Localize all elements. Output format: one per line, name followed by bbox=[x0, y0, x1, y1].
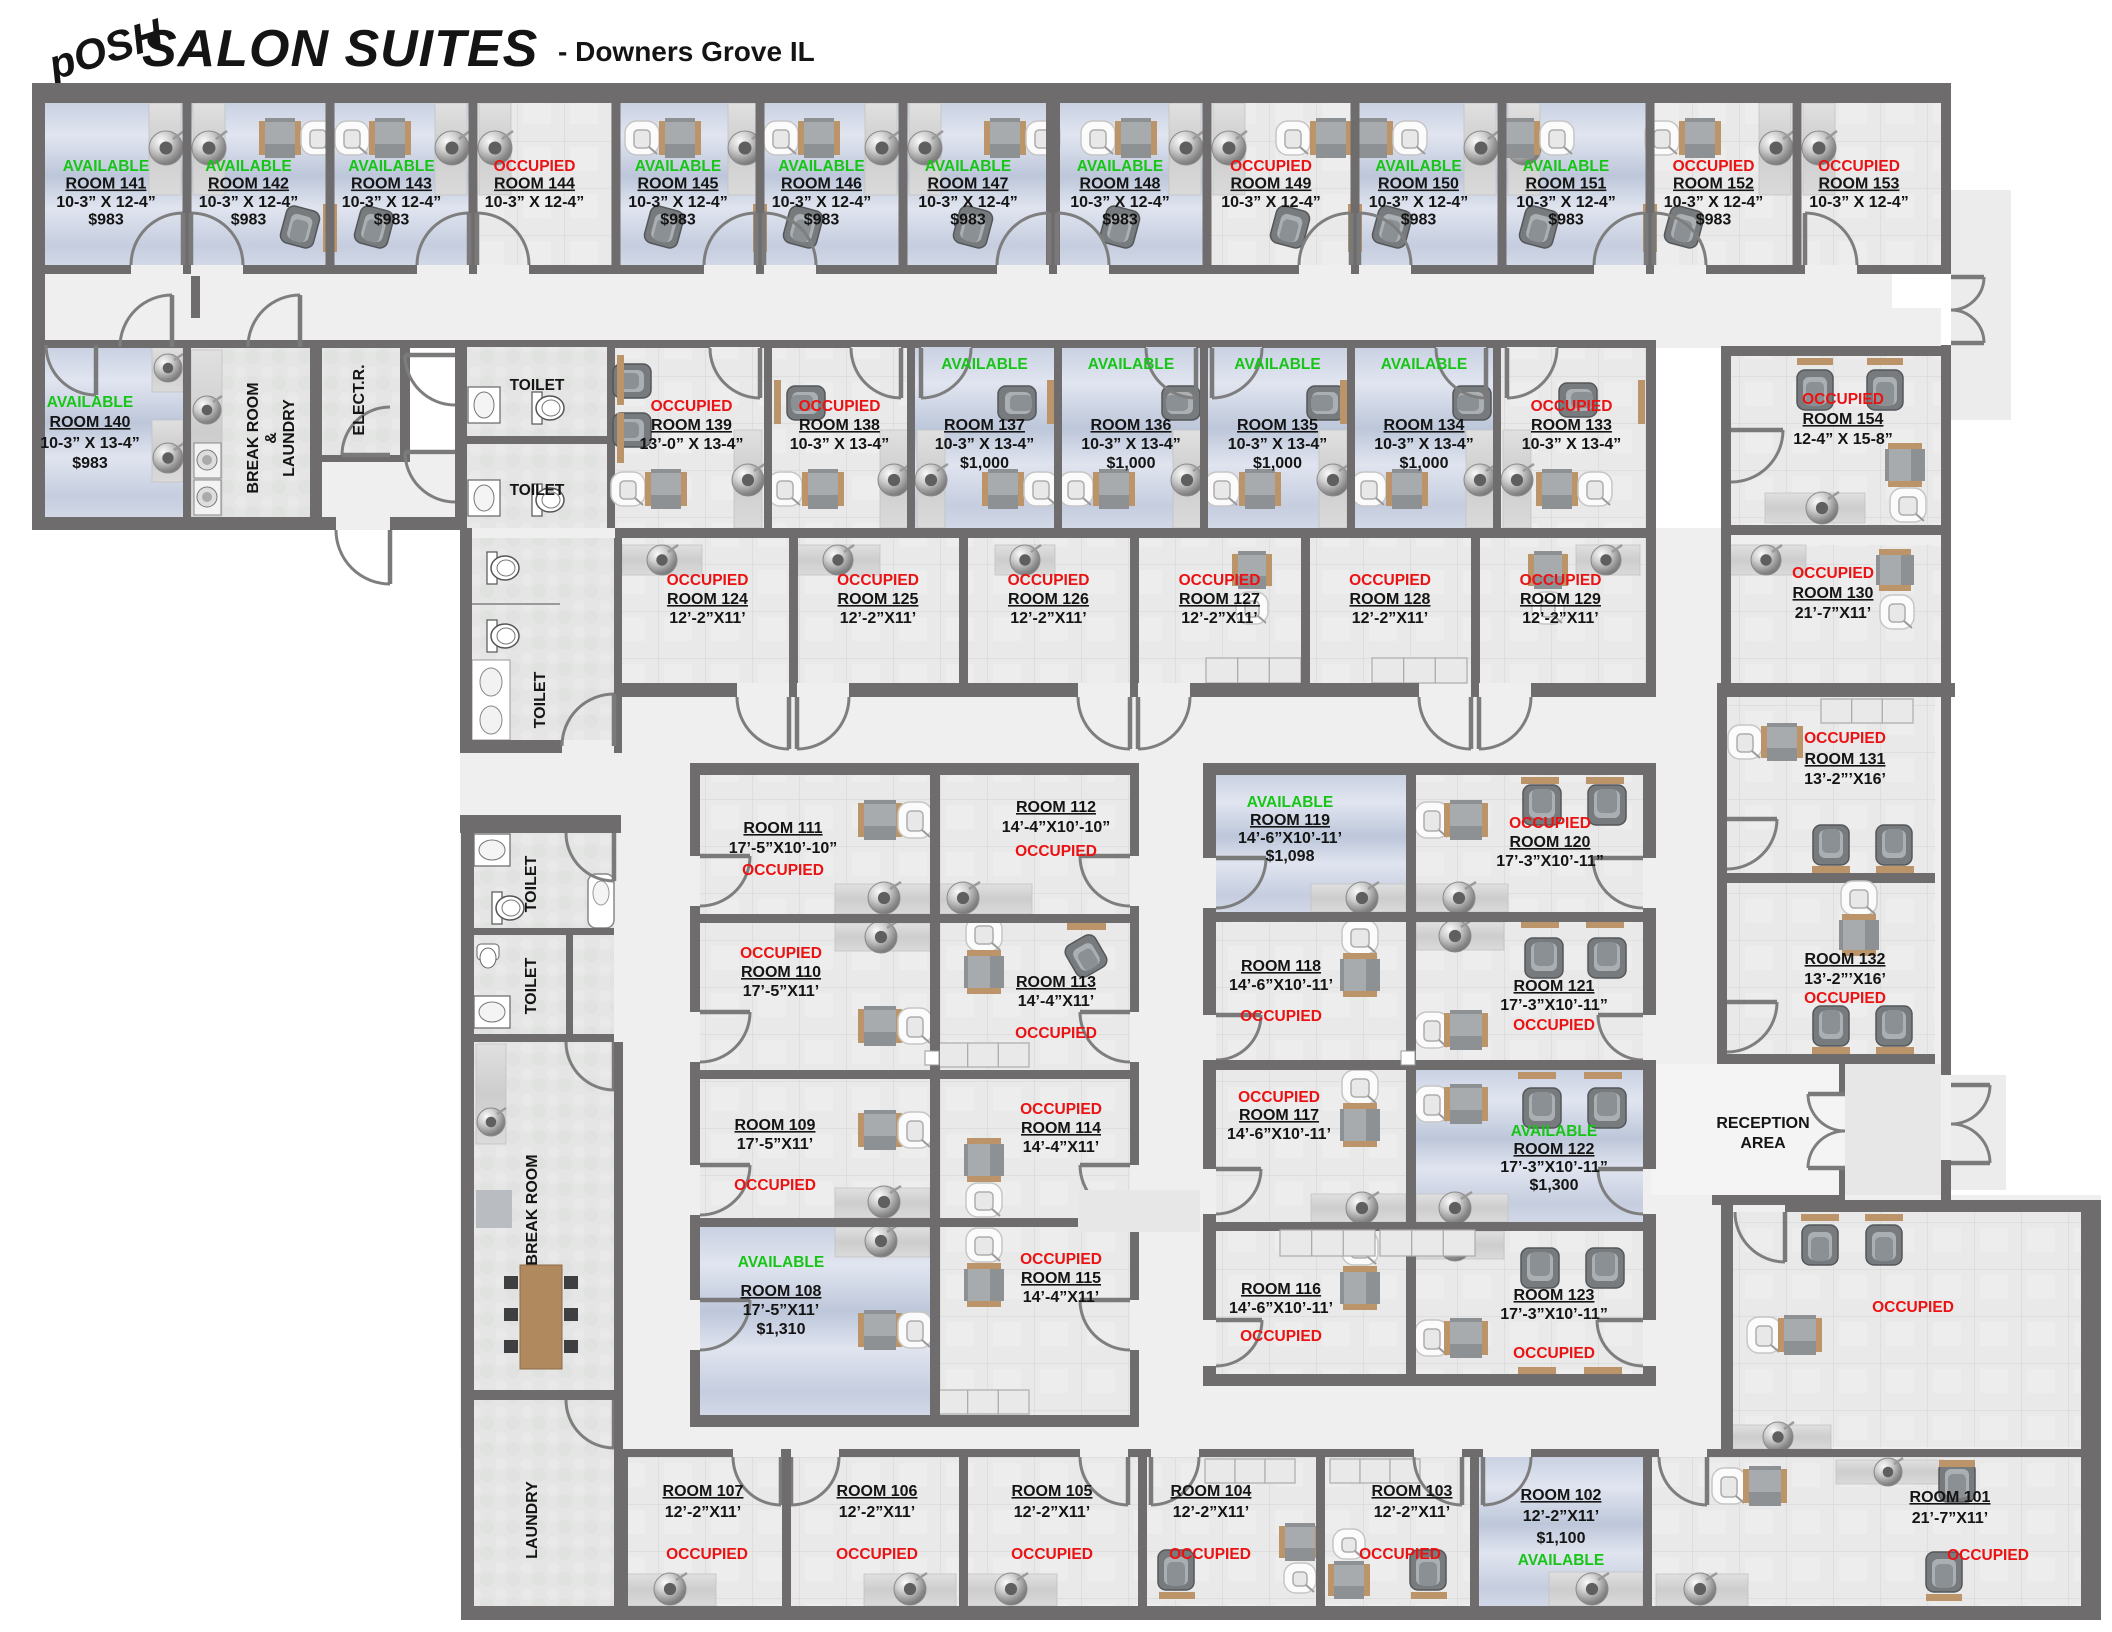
svg-text:AVAILABLE: AVAILABLE bbox=[1375, 158, 1461, 175]
svg-text:ROOM 135: ROOM 135 bbox=[1237, 417, 1318, 434]
svg-text:12’-2”X11’: 12’-2”X11’ bbox=[1523, 1508, 1600, 1525]
svg-text:$1,310: $1,310 bbox=[757, 1321, 806, 1338]
svg-text:ROOM 106: ROOM 106 bbox=[837, 1483, 918, 1500]
svg-text:AVAILABLE: AVAILABLE bbox=[47, 394, 133, 411]
svg-text:OCCUPIED: OCCUPIED bbox=[1015, 1025, 1097, 1042]
svg-text:OCCUPIED: OCCUPIED bbox=[1238, 1089, 1320, 1106]
svg-text:ROOM 128: ROOM 128 bbox=[1350, 591, 1431, 608]
svg-text:ROOM 114: ROOM 114 bbox=[1021, 1120, 1101, 1137]
svg-text:12’-2”X11’: 12’-2”X11’ bbox=[669, 610, 746, 627]
svg-text:14’-6”X10’-11’: 14’-6”X10’-11’ bbox=[1238, 830, 1342, 847]
svg-text:ROOM 126: ROOM 126 bbox=[1008, 591, 1089, 608]
svg-text:ROOM 111: ROOM 111 bbox=[743, 820, 822, 837]
svg-text:ROOM 104: ROOM 104 bbox=[1171, 1483, 1252, 1500]
svg-text:ROOM 141: ROOM 141 bbox=[66, 176, 147, 193]
svg-text:21’-7”X11’: 21’-7”X11’ bbox=[1912, 1510, 1989, 1527]
svg-text:OCCUPIED: OCCUPIED bbox=[1872, 1299, 1954, 1316]
svg-text:ROOM 127: ROOM 127 bbox=[1179, 591, 1260, 608]
svg-text:OCCUPIED: OCCUPIED bbox=[740, 945, 822, 962]
svg-text:17’-3”X10’-11”: 17’-3”X10’-11” bbox=[1496, 853, 1604, 870]
svg-text:ROOM 137: ROOM 137 bbox=[944, 417, 1025, 434]
svg-text:ROOM 142: ROOM 142 bbox=[208, 176, 289, 193]
svg-text:17’-5”X11’: 17’-5”X11’ bbox=[743, 1302, 820, 1319]
svg-text:RECEPTION: RECEPTION bbox=[1716, 1115, 1809, 1132]
svg-text:OCCUPIED: OCCUPIED bbox=[836, 1546, 918, 1563]
svg-text:OCCUPIED: OCCUPIED bbox=[1818, 158, 1900, 175]
svg-text:ROOM 122: ROOM 122 bbox=[1514, 1141, 1595, 1158]
svg-text:OCCUPIED: OCCUPIED bbox=[1531, 398, 1613, 415]
svg-text:12’-2”X11’: 12’-2”X11’ bbox=[839, 1504, 916, 1521]
svg-text:AVAILABLE: AVAILABLE bbox=[925, 158, 1011, 175]
svg-text:ROOM 147: ROOM 147 bbox=[928, 176, 1009, 193]
svg-text:SALON SUITES: SALON SUITES bbox=[142, 20, 538, 78]
svg-text:$983: $983 bbox=[1548, 212, 1584, 229]
svg-text:$983: $983 bbox=[1696, 212, 1732, 229]
svg-text:12’-2”X11’: 12’-2”X11’ bbox=[1522, 610, 1599, 627]
svg-text:ROOM 115: ROOM 115 bbox=[1021, 1270, 1101, 1287]
svg-text:$1,100: $1,100 bbox=[1537, 1530, 1586, 1547]
svg-text:ROOM 109: ROOM 109 bbox=[735, 1117, 816, 1134]
svg-text:ROOM 101: ROOM 101 bbox=[1910, 1489, 1991, 1506]
svg-text:12’-2”X11’: 12’-2”X11’ bbox=[665, 1504, 742, 1521]
svg-text:17’-3”X10’-11”: 17’-3”X10’-11” bbox=[1500, 997, 1608, 1014]
svg-text:ROOM 146: ROOM 146 bbox=[781, 176, 862, 193]
svg-text:OCCUPIED: OCCUPIED bbox=[651, 398, 733, 415]
svg-text:ROOM 153: ROOM 153 bbox=[1819, 176, 1900, 193]
svg-text:ROOM 138: ROOM 138 bbox=[799, 417, 880, 434]
svg-text:$1,098: $1,098 bbox=[1266, 848, 1315, 865]
svg-text:OCCUPIED: OCCUPIED bbox=[494, 158, 576, 175]
svg-text:AVAILABLE: AVAILABLE bbox=[1247, 794, 1333, 811]
svg-text:10-3” X 12-4”: 10-3” X 12-4” bbox=[1070, 194, 1170, 211]
svg-text:10-3” X 13-4”: 10-3” X 13-4” bbox=[40, 435, 140, 452]
svg-text:ROOM 149: ROOM 149 bbox=[1231, 176, 1312, 193]
svg-text:ELECT.R.: ELECT.R. bbox=[351, 364, 368, 435]
svg-text:OCCUPIED: OCCUPIED bbox=[1011, 1546, 1093, 1563]
svg-text:ROOM 130: ROOM 130 bbox=[1793, 585, 1874, 602]
svg-text:OCCUPIED: OCCUPIED bbox=[1520, 572, 1602, 589]
svg-text:ROOM 129: ROOM 129 bbox=[1520, 591, 1601, 608]
svg-text:AVAILABLE: AVAILABLE bbox=[1088, 356, 1174, 373]
svg-text:OCCUPIED: OCCUPIED bbox=[1792, 565, 1874, 582]
svg-text:$983: $983 bbox=[1102, 212, 1138, 229]
svg-text:10-3” X 13-4”: 10-3” X 13-4” bbox=[1374, 436, 1474, 453]
svg-text:14’-4”X10’-10”: 14’-4”X10’-10” bbox=[1002, 819, 1111, 836]
svg-text:ROOM 131: ROOM 131 bbox=[1805, 751, 1886, 768]
svg-text:$983: $983 bbox=[804, 212, 840, 229]
svg-text:ROOM 116: ROOM 116 bbox=[1241, 1281, 1321, 1298]
svg-text:12’-2”X11’: 12’-2”X11’ bbox=[1173, 1504, 1250, 1521]
svg-text:10-3” X 12-4”: 10-3” X 12-4” bbox=[199, 194, 299, 211]
svg-text:10-3” X 12-4”: 10-3” X 12-4” bbox=[918, 194, 1018, 211]
svg-text:AVAILABLE: AVAILABLE bbox=[1523, 158, 1609, 175]
svg-text:13’-2”’X16’: 13’-2”’X16’ bbox=[1804, 771, 1886, 788]
svg-text:AVAILABLE: AVAILABLE bbox=[1511, 1123, 1597, 1140]
svg-text:17’-5”X11’: 17’-5”X11’ bbox=[743, 983, 820, 1000]
svg-text:$1,000: $1,000 bbox=[1400, 455, 1449, 472]
svg-text:AVAILABLE: AVAILABLE bbox=[1518, 1552, 1604, 1569]
svg-text:TOILET: TOILET bbox=[523, 957, 540, 1014]
svg-text:ROOM 108: ROOM 108 bbox=[741, 1283, 822, 1300]
svg-text:10-3” X 12-4”: 10-3” X 12-4” bbox=[56, 194, 156, 211]
svg-text:ROOM 132: ROOM 132 bbox=[1805, 951, 1886, 968]
svg-text:10-3” X 13-4”: 10-3” X 13-4” bbox=[1522, 436, 1622, 453]
svg-text:12-4” X 15-8”: 12-4” X 15-8” bbox=[1793, 431, 1893, 448]
svg-text:OCCUPIED: OCCUPIED bbox=[1947, 1547, 2029, 1564]
svg-text:OCCUPIED: OCCUPIED bbox=[1240, 1328, 1322, 1345]
svg-text:10-3” X 12-4”: 10-3” X 12-4” bbox=[772, 194, 872, 211]
svg-text:ROOM 150: ROOM 150 bbox=[1378, 176, 1459, 193]
svg-text:ROOM 102: ROOM 102 bbox=[1521, 1487, 1602, 1504]
svg-text:TOILET: TOILET bbox=[532, 671, 549, 728]
svg-text:OCCUPIED: OCCUPIED bbox=[1015, 843, 1097, 860]
svg-text:$1,000: $1,000 bbox=[1107, 455, 1156, 472]
svg-text:TOILET: TOILET bbox=[523, 855, 540, 912]
svg-text:BREAK ROOM: BREAK ROOM bbox=[524, 1154, 541, 1265]
svg-text:10-3” X 13-4”: 10-3” X 13-4” bbox=[1228, 436, 1328, 453]
svg-text:13’-2”’X16’: 13’-2”’X16’ bbox=[1804, 971, 1886, 988]
svg-text:ROOM 121: ROOM 121 bbox=[1514, 978, 1595, 995]
svg-text:ROOM 124: ROOM 124 bbox=[667, 591, 748, 608]
svg-text:10-3” X 12-4”: 10-3” X 12-4” bbox=[1516, 194, 1616, 211]
svg-text:ROOM 113: ROOM 113 bbox=[1016, 974, 1096, 991]
svg-text:OCCUPIED: OCCUPIED bbox=[1802, 391, 1884, 408]
svg-text:ROOM 103: ROOM 103 bbox=[1372, 1483, 1453, 1500]
svg-text:OCCUPIED: OCCUPIED bbox=[742, 862, 824, 879]
svg-text:OCCUPIED: OCCUPIED bbox=[734, 1177, 816, 1194]
svg-text:12’-2”X11’: 12’-2”X11’ bbox=[1181, 610, 1258, 627]
svg-text:OCCUPIED: OCCUPIED bbox=[1804, 730, 1886, 747]
svg-text:ROOM 118: ROOM 118 bbox=[1241, 958, 1321, 975]
svg-text:10-3” X 13-4”: 10-3” X 13-4” bbox=[935, 436, 1035, 453]
svg-text:12’-2”X11’: 12’-2”X11’ bbox=[840, 610, 917, 627]
svg-text:17’-3”X10’-11”: 17’-3”X10’-11” bbox=[1500, 1306, 1608, 1323]
svg-text:10-3” X 12-4”: 10-3” X 12-4” bbox=[1809, 194, 1909, 211]
svg-text:$983: $983 bbox=[72, 455, 108, 472]
svg-text:OCCUPIED: OCCUPIED bbox=[1349, 572, 1431, 589]
svg-text:10-3” X 12-4”: 10-3” X 12-4” bbox=[485, 194, 585, 211]
svg-text:$983: $983 bbox=[950, 212, 986, 229]
svg-text:ROOM 110: ROOM 110 bbox=[741, 964, 821, 981]
svg-text:OCCUPIED: OCCUPIED bbox=[1020, 1251, 1102, 1268]
svg-text:AVAILABLE: AVAILABLE bbox=[348, 158, 434, 175]
svg-text:10-3” X 12-4”: 10-3” X 12-4” bbox=[342, 194, 442, 211]
svg-text:OCCUPIED: OCCUPIED bbox=[666, 1546, 748, 1563]
svg-text:12’-2”X11’: 12’-2”X11’ bbox=[1374, 1504, 1451, 1521]
svg-text:ROOM 140: ROOM 140 bbox=[50, 414, 131, 431]
svg-text:10-3” X 12-4”: 10-3” X 12-4” bbox=[1221, 194, 1321, 211]
svg-text:OCCUPIED: OCCUPIED bbox=[799, 398, 881, 415]
svg-text:14’-4”X11’: 14’-4”X11’ bbox=[1023, 1289, 1100, 1306]
svg-text:OCCUPIED: OCCUPIED bbox=[1230, 158, 1312, 175]
svg-text:ROOM 107: ROOM 107 bbox=[663, 1483, 744, 1500]
svg-text:ROOM 144: ROOM 144 bbox=[494, 176, 575, 193]
svg-text:OCCUPIED: OCCUPIED bbox=[1240, 1008, 1322, 1025]
svg-text:ROOM 148: ROOM 148 bbox=[1080, 176, 1161, 193]
svg-text:14’-4”X11’: 14’-4”X11’ bbox=[1018, 993, 1095, 1010]
svg-text:AVAILABLE: AVAILABLE bbox=[1234, 356, 1320, 373]
svg-text:ROOM 136: ROOM 136 bbox=[1091, 417, 1172, 434]
svg-text:$983: $983 bbox=[660, 212, 696, 229]
svg-text:OCCUPIED: OCCUPIED bbox=[837, 572, 919, 589]
svg-text:17’-5”X11’: 17’-5”X11’ bbox=[737, 1136, 814, 1153]
svg-text:14’-4”X11’: 14’-4”X11’ bbox=[1023, 1139, 1100, 1156]
svg-text:ROOM 125: ROOM 125 bbox=[838, 591, 919, 608]
svg-text:ROOM 105: ROOM 105 bbox=[1012, 1483, 1093, 1500]
svg-text:ROOM 119: ROOM 119 bbox=[1250, 812, 1330, 829]
svg-text:OCCUPIED: OCCUPIED bbox=[1513, 1345, 1595, 1362]
svg-text:OCCUPIED: OCCUPIED bbox=[1509, 815, 1591, 832]
svg-text:OCCUPIED: OCCUPIED bbox=[1020, 1101, 1102, 1118]
svg-text:10-3” X 13-4”: 10-3” X 13-4” bbox=[790, 436, 890, 453]
svg-text:ROOM 112: ROOM 112 bbox=[1016, 799, 1096, 816]
svg-text:AVAILABLE: AVAILABLE bbox=[778, 158, 864, 175]
svg-text:ROOM 139: ROOM 139 bbox=[651, 417, 732, 434]
svg-text:&: & bbox=[263, 432, 280, 444]
svg-text:$983: $983 bbox=[88, 212, 124, 229]
svg-text:$1,000: $1,000 bbox=[960, 455, 1009, 472]
svg-text:$983: $983 bbox=[1401, 212, 1437, 229]
svg-text:ROOM 151: ROOM 151 bbox=[1526, 176, 1607, 193]
svg-text:ROOM 133: ROOM 133 bbox=[1531, 417, 1612, 434]
svg-text:OCCUPIED: OCCUPIED bbox=[667, 572, 749, 589]
svg-text:17’-5”X10’-10”: 17’-5”X10’-10” bbox=[729, 840, 838, 857]
svg-text:AVAILABLE: AVAILABLE bbox=[1077, 158, 1163, 175]
svg-text:ROOM 154: ROOM 154 bbox=[1803, 411, 1884, 428]
svg-text:10-3” X 12-4”: 10-3” X 12-4” bbox=[628, 194, 728, 211]
svg-text:AVAILABLE: AVAILABLE bbox=[941, 356, 1027, 373]
svg-text:ROOM 145: ROOM 145 bbox=[638, 176, 719, 193]
svg-text:OCCUPIED: OCCUPIED bbox=[1513, 1017, 1595, 1034]
svg-text:AVAILABLE: AVAILABLE bbox=[205, 158, 291, 175]
svg-text:AVAILABLE: AVAILABLE bbox=[738, 1254, 824, 1271]
svg-text:10-3” X 12-4”: 10-3” X 12-4” bbox=[1664, 194, 1764, 211]
svg-text:TOILET: TOILET bbox=[510, 377, 565, 394]
svg-text:$983: $983 bbox=[374, 212, 410, 229]
svg-text:LAUNDRY: LAUNDRY bbox=[281, 399, 298, 477]
svg-text:ROOM 117: ROOM 117 bbox=[1239, 1107, 1319, 1124]
svg-text:TOILET: TOILET bbox=[510, 482, 565, 499]
svg-text:OCCUPIED: OCCUPIED bbox=[1804, 990, 1886, 1007]
svg-text:OCCUPIED: OCCUPIED bbox=[1169, 1546, 1251, 1563]
svg-text:ROOM 120: ROOM 120 bbox=[1510, 834, 1591, 851]
svg-text:14’-6”X10’-11’: 14’-6”X10’-11’ bbox=[1229, 1300, 1333, 1317]
svg-text:ROOM 152: ROOM 152 bbox=[1673, 176, 1754, 193]
svg-text:$1,000: $1,000 bbox=[1253, 455, 1302, 472]
svg-text:12’-2”X11’: 12’-2”X11’ bbox=[1352, 610, 1429, 627]
svg-text:ROOM 123: ROOM 123 bbox=[1514, 1287, 1595, 1304]
svg-text:ROOM 134: ROOM 134 bbox=[1384, 417, 1465, 434]
svg-text:10-3” X 12-4”: 10-3” X 12-4” bbox=[1369, 194, 1469, 211]
svg-text:21’-7”X11’: 21’-7”X11’ bbox=[1795, 605, 1872, 622]
svg-text:AVAILABLE: AVAILABLE bbox=[63, 158, 149, 175]
svg-text:ROOM 143: ROOM 143 bbox=[351, 176, 432, 193]
svg-text:AREA: AREA bbox=[1740, 1135, 1786, 1152]
svg-text:14’-6”X10’-11’: 14’-6”X10’-11’ bbox=[1229, 977, 1333, 994]
svg-text:BREAK ROOM: BREAK ROOM bbox=[245, 382, 262, 493]
svg-text:AVAILABLE: AVAILABLE bbox=[1381, 356, 1467, 373]
svg-text:12’-2”X11’: 12’-2”X11’ bbox=[1014, 1504, 1091, 1521]
svg-text:10-3” X 13-4”: 10-3” X 13-4” bbox=[1081, 436, 1181, 453]
svg-text:LAUNDRY: LAUNDRY bbox=[524, 1481, 541, 1559]
svg-text:12’-2”X11’: 12’-2”X11’ bbox=[1010, 610, 1087, 627]
svg-text:OCCUPIED: OCCUPIED bbox=[1673, 158, 1755, 175]
svg-text:14’-6”X10’-11’: 14’-6”X10’-11’ bbox=[1227, 1126, 1331, 1143]
svg-text:17’-3”X10’-11”: 17’-3”X10’-11” bbox=[1500, 1159, 1608, 1176]
svg-text:OCCUPIED: OCCUPIED bbox=[1008, 572, 1090, 589]
svg-text:$983: $983 bbox=[231, 212, 267, 229]
svg-text:13’-0” X 13-4”: 13’-0” X 13-4” bbox=[639, 436, 743, 453]
svg-text:- Downers Grove IL: - Downers Grove IL bbox=[558, 36, 815, 67]
svg-text:$1,300: $1,300 bbox=[1530, 1177, 1579, 1194]
svg-text:OCCUPIED: OCCUPIED bbox=[1179, 572, 1261, 589]
svg-text:AVAILABLE: AVAILABLE bbox=[635, 158, 721, 175]
svg-text:OCCUPIED: OCCUPIED bbox=[1359, 1546, 1441, 1563]
